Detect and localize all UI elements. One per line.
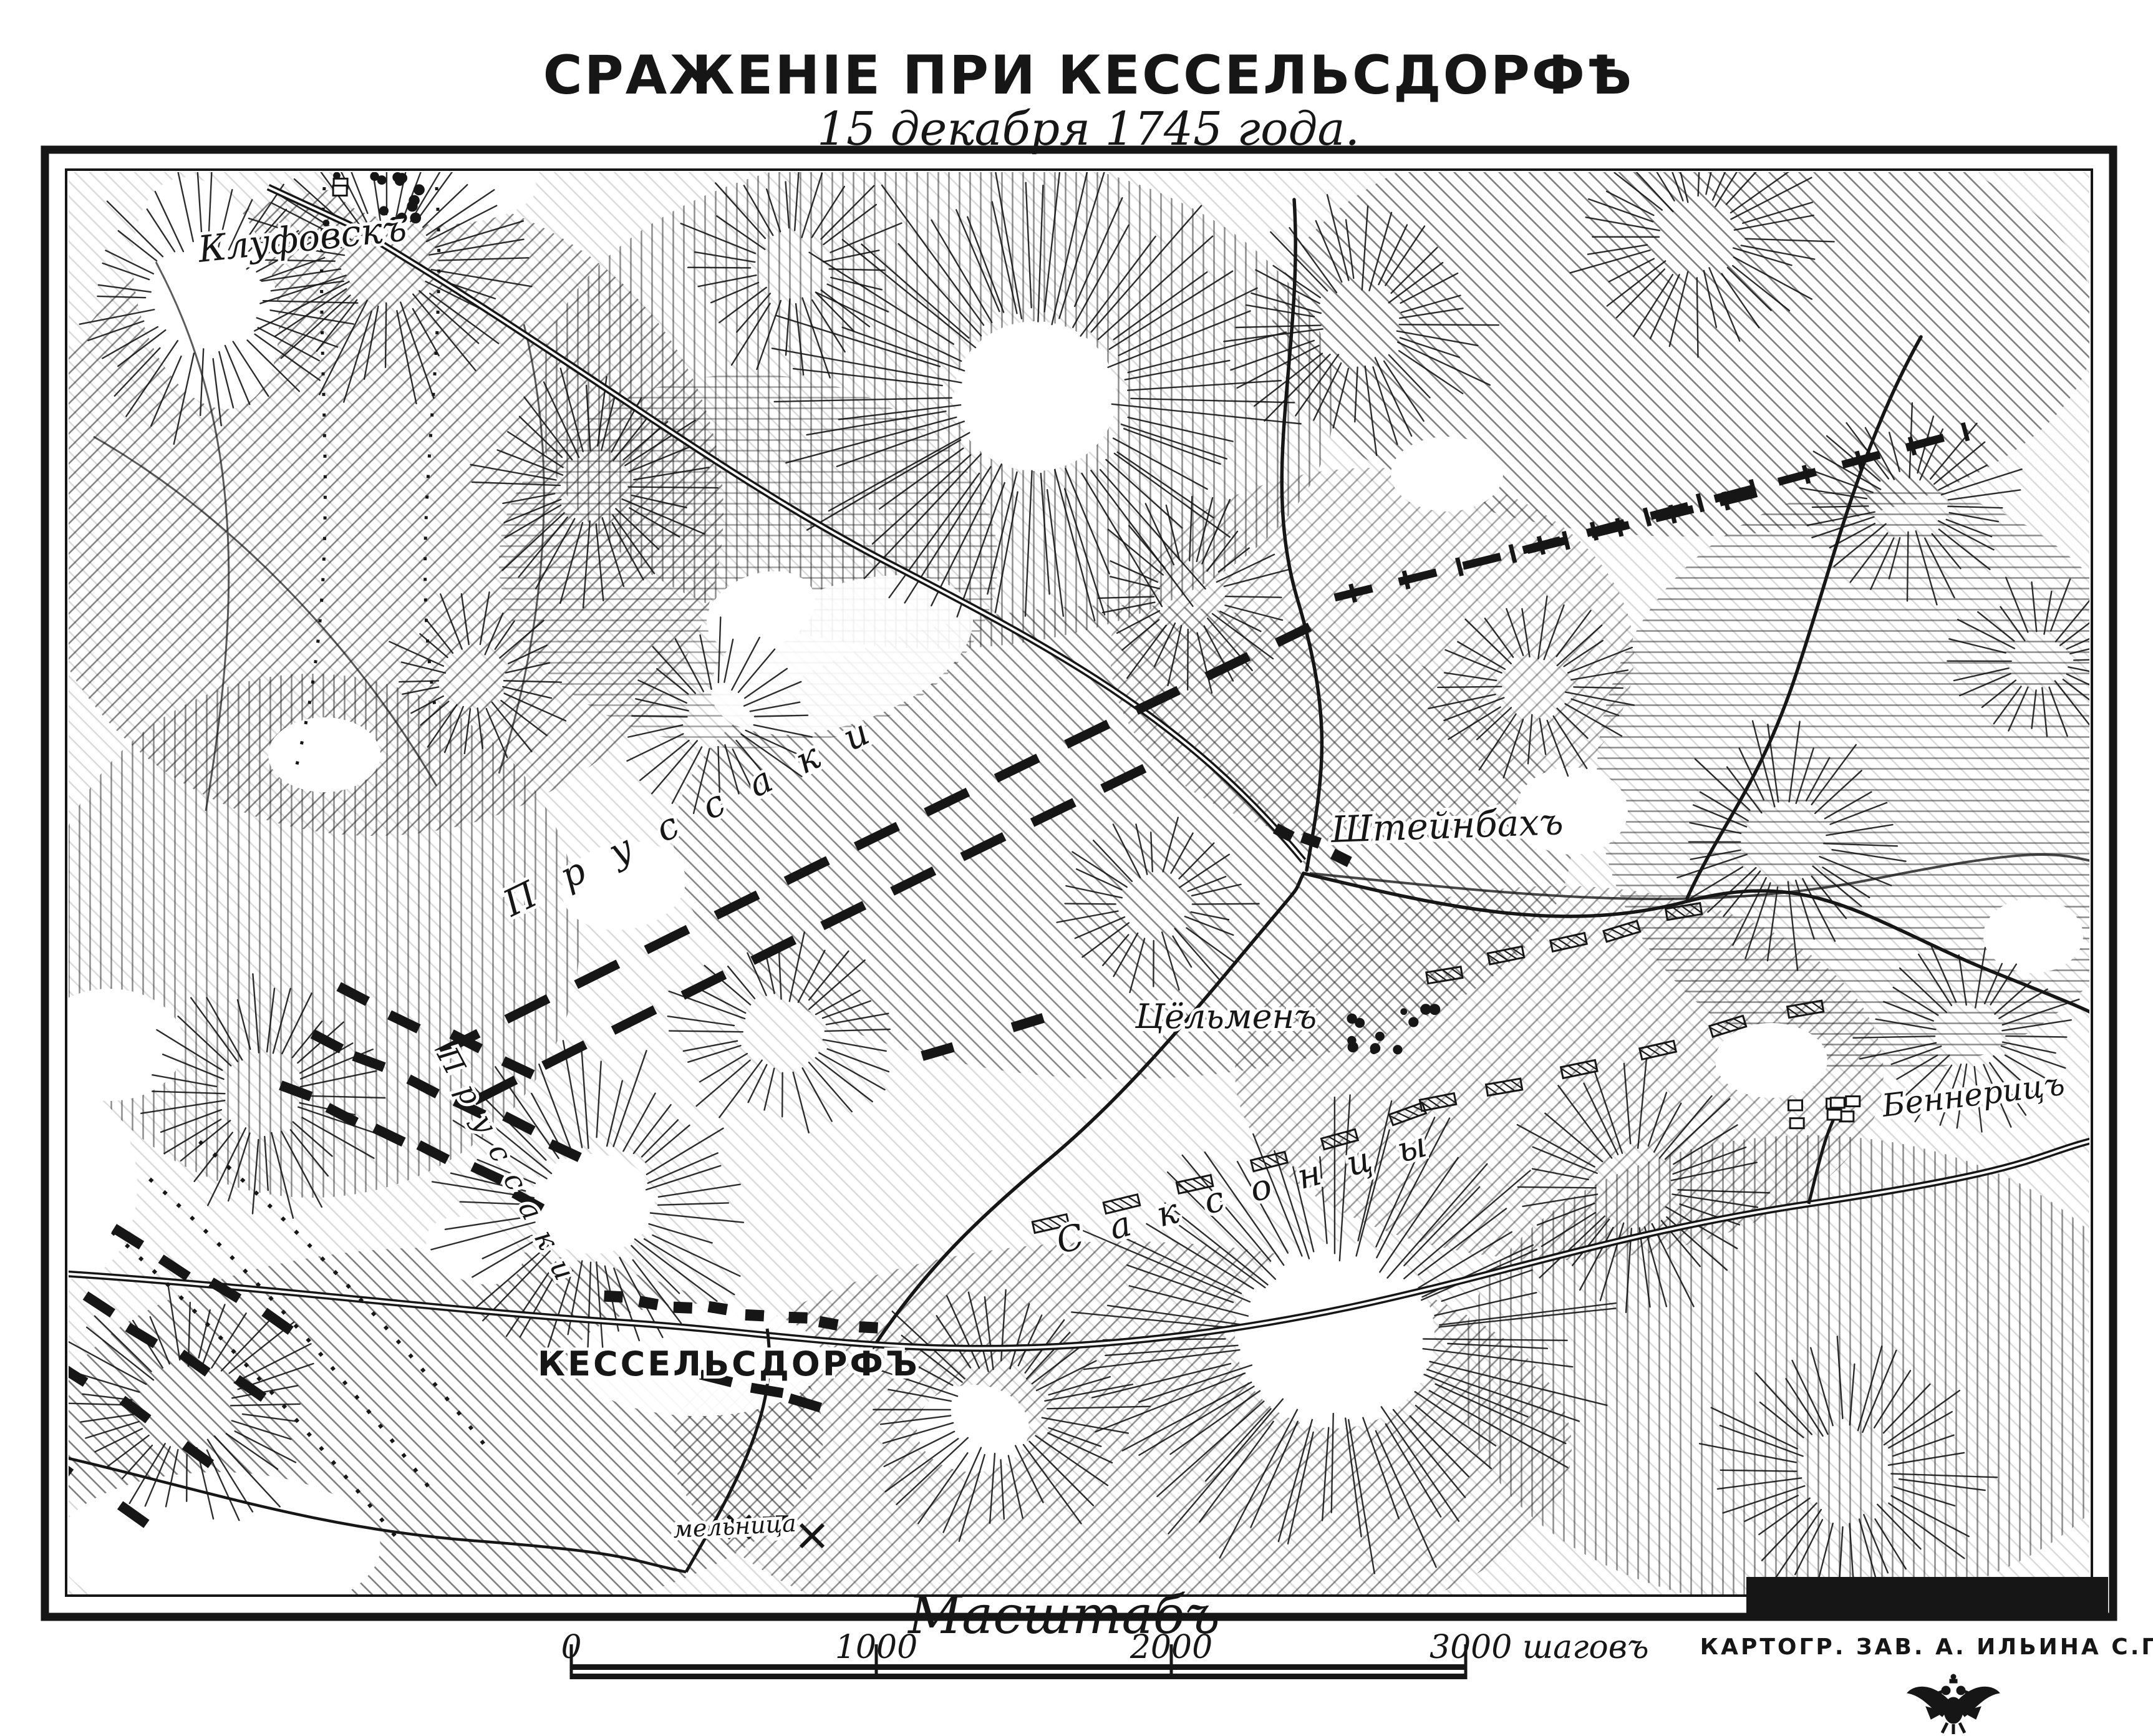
scale-bar: Масштабъ 0 1000 2000 3000 шаговъ — [561, 1584, 1648, 1679]
scale-bar-line-top — [571, 1664, 1466, 1670]
battle-map-svg: СРАЖЕНІЕ ПРИ КЕССЕЛЬСДОРФѢ 15 декабря 17… — [0, 0, 2153, 1736]
engraver-credit: ГРАВ. Н. КОНОНОВЪ — [1787, 1588, 2068, 1612]
label-kesselsdorf: КЕССЕЛЬСДОРФЪ — [538, 1344, 920, 1384]
map-sheet: СРАЖЕНІЕ ПРИ КЕССЕЛЬСДОРФѢ 15 декабря 17… — [0, 0, 2153, 1736]
scale-tick-3000: 3000 шаговъ — [1430, 1629, 1649, 1666]
publisher-credit: КАРТОГР. ЗАВ. А. ИЛЬИНА С.П.Б. — [1700, 1634, 2153, 1660]
map-content: Клуфовскъ Пруссаки Пруссаки Штейнбахъ Цё… — [12, 112, 2153, 1653]
page-title: СРАЖЕНІЕ ПРИ КЕССЕЛЬСДОРФѢ — [543, 44, 1634, 107]
label-zollmen: Цёльменъ — [1135, 997, 1317, 1036]
credits: ГРАВ. Н. КОНОНОВЪ КАРТОГР. ЗАВ. А. ИЛЬИН… — [1700, 1577, 2153, 1734]
imperial-eagle-icon — [1907, 1674, 2000, 1734]
label-steinbach: Штейнбахъ — [1330, 800, 1564, 851]
scale-bar-line-bottom — [571, 1674, 1466, 1679]
